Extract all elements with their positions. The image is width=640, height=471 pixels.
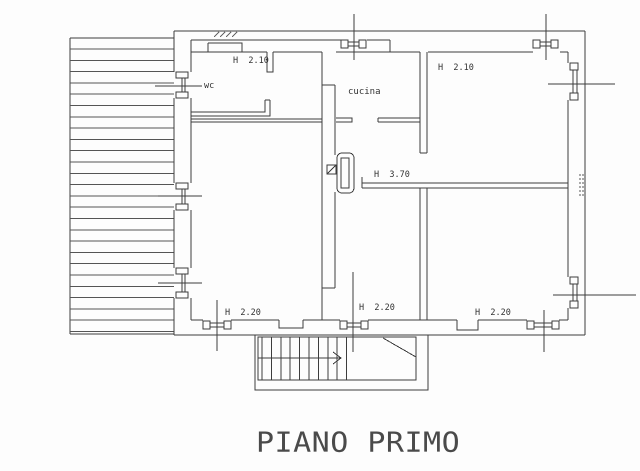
- page-title: PIANO PRIMO: [256, 429, 476, 457]
- window-icon: [533, 14, 558, 60]
- window-icon: [553, 277, 636, 308]
- room-height-label-hall: H 3.70: [374, 171, 410, 180]
- room-height-label-wc: H 2.10: [233, 57, 269, 66]
- room-height-label-hall-bottom: H 2.20: [359, 304, 395, 313]
- door-icon: [158, 268, 202, 298]
- window-icon: [548, 63, 615, 100]
- chimney-niche: [208, 43, 242, 52]
- pocket-door-icon: [327, 153, 354, 193]
- floor-plan-drawing: [0, 0, 640, 471]
- room-label-wc: wc: [204, 82, 214, 91]
- room-height-label-bedroom-bottom-right: H 2.20: [475, 309, 511, 318]
- interior-walls: [191, 43, 583, 320]
- staircase: [255, 335, 428, 390]
- window-icon: [527, 310, 559, 352]
- floor-plan-page: H 2.10 wc cucina H 2.10 H 3.70 H 2.20 H …: [0, 0, 640, 471]
- room-label-kitchen: cucina: [348, 88, 381, 97]
- door-icon: [158, 183, 202, 210]
- room-height-label-bedroom-top-right: H 2.10: [438, 64, 474, 73]
- window-icon: [341, 14, 366, 60]
- room-height-label-room-left: H 2.20: [225, 309, 261, 318]
- terrace-hatch: [70, 49, 174, 332]
